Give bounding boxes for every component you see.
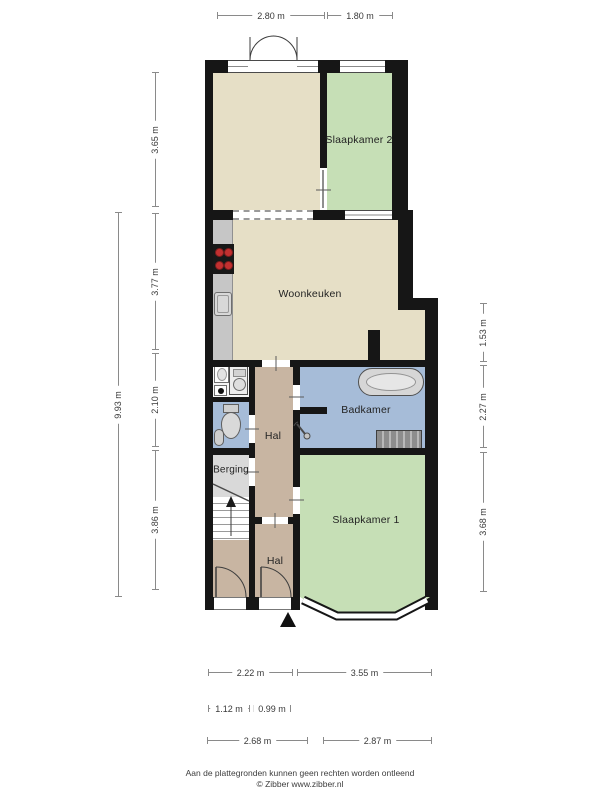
dim-left-2: 3.77 m	[149, 213, 161, 350]
room-entry	[213, 540, 249, 597]
label-badkamer: Badkamer	[341, 404, 390, 416]
dim-left-1: 3.65 m	[149, 72, 161, 207]
open-passage-dashed	[233, 210, 313, 220]
room-slaapkamer1	[300, 455, 428, 597]
wall-stub-badkamer	[297, 407, 327, 414]
wall-divider-top	[320, 73, 327, 168]
wall-segment	[205, 448, 255, 455]
door-opening-toilet	[249, 415, 255, 443]
french-doors-opening	[248, 60, 297, 73]
disclaimer-text: Aan de plattegronden kunnen geen rechten…	[0, 768, 600, 778]
dim-bottom-1a: 2.22 m	[208, 666, 293, 678]
bathtub	[358, 368, 424, 396]
window-top-1	[228, 60, 248, 73]
wall-stub-woonkeuken	[368, 330, 380, 360]
front-door-opening-entry	[214, 597, 246, 610]
label-slaapkamer1: Slaapkamer 1	[332, 514, 399, 526]
bay-window-frame	[303, 600, 427, 616]
window-top-2	[297, 60, 318, 73]
cooktop	[212, 244, 234, 274]
door-opening-hal-mid	[262, 517, 288, 524]
label-berging: Berging	[213, 465, 249, 476]
dim-left-3: 2.10 m	[149, 353, 161, 447]
french-door-arc-left	[250, 36, 274, 60]
sliding-door	[322, 170, 324, 208]
wall-segment	[313, 210, 345, 220]
radiator	[376, 430, 422, 449]
front-door-opening-hal	[259, 597, 291, 610]
window-slaapkamer2-interior	[345, 210, 392, 220]
wall-right-upper	[392, 60, 408, 220]
bay-window-glass	[303, 600, 427, 616]
washing-machine	[229, 366, 248, 395]
dim-bottom-3b: 2.87 m	[323, 734, 432, 746]
door-opening-berging	[249, 458, 255, 486]
wall-right-lower	[425, 300, 438, 610]
floorplan-page: Slaapkamer 2 Woonkeuken Badkamer Hal Ber…	[0, 0, 600, 800]
dim-bottom-1b: 3.55 m	[297, 666, 432, 678]
door-opening-badkamer	[293, 385, 300, 410]
dim-right-3: 3.68 m	[477, 452, 489, 592]
room-berging	[213, 455, 249, 497]
toilet-basin	[214, 429, 224, 446]
label-hal-upper: Hal	[265, 430, 281, 442]
door-opening-hal-woonkeuken	[262, 360, 290, 367]
label-woonkeuken: Woonkeuken	[278, 288, 341, 300]
room-woonkeuken-ext	[398, 310, 428, 360]
wall-segment	[213, 210, 233, 220]
kitchen-sink	[214, 292, 232, 316]
dim-bottom-3a: 2.68 m	[207, 734, 308, 746]
door-opening-slaapkamer1	[293, 487, 300, 514]
wall-segment	[318, 60, 342, 73]
dim-bottom-2b: 0.99 m	[253, 702, 291, 714]
kitchen-counter	[213, 220, 233, 360]
label-hal-lower: Hal	[267, 555, 283, 567]
wall-segment	[293, 448, 438, 455]
wall-right-mid	[398, 210, 413, 310]
window-top-3	[340, 60, 385, 73]
north-arrow-icon	[280, 612, 296, 627]
bay-window-floor	[300, 597, 430, 619]
credit-text: © Zibber www.zibber.nl	[0, 779, 600, 789]
label-slaapkamer2: Slaapkamer 2	[325, 134, 392, 146]
wall-segment	[205, 397, 249, 402]
dim-top-2: 1.80 m	[327, 9, 393, 21]
dim-right-1: 1.53 m	[477, 303, 489, 362]
french-door-arc-right	[273, 36, 297, 60]
room-hal-upper	[255, 367, 293, 517]
stairs	[213, 497, 249, 540]
dim-bottom-2a: 1.12 m	[208, 702, 250, 714]
dim-top-1: 2.80 m	[217, 9, 325, 21]
boiler	[214, 385, 227, 396]
dim-right-2: 2.27 m	[477, 365, 489, 448]
dim-left-total: 9.93 m	[112, 212, 124, 597]
wall-segment	[290, 360, 438, 367]
room-front-top	[213, 73, 320, 210]
dim-left-4: 3.86 m	[149, 450, 161, 590]
wall-left-outer	[205, 60, 213, 610]
